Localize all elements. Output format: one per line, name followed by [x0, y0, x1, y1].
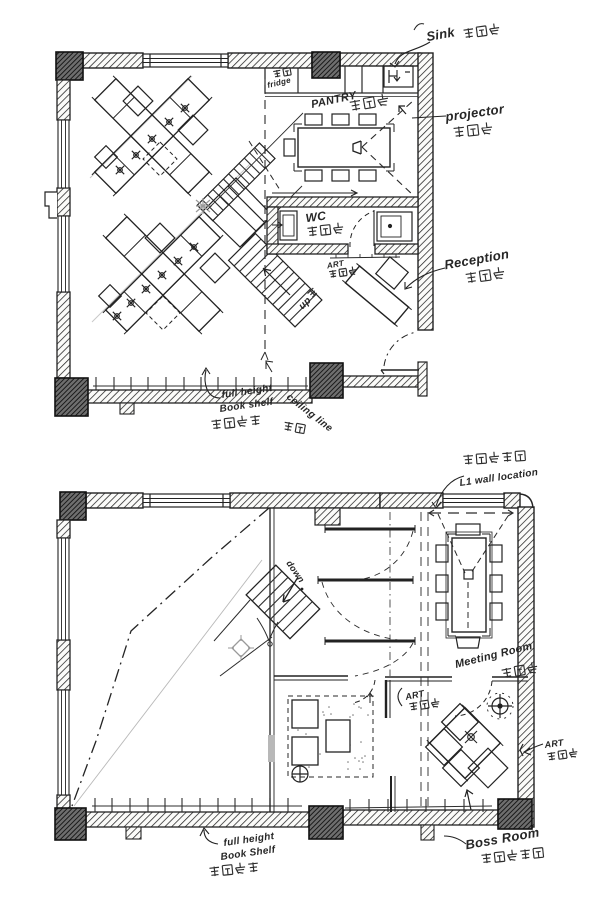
svg-text:WC: WC — [305, 208, 327, 225]
